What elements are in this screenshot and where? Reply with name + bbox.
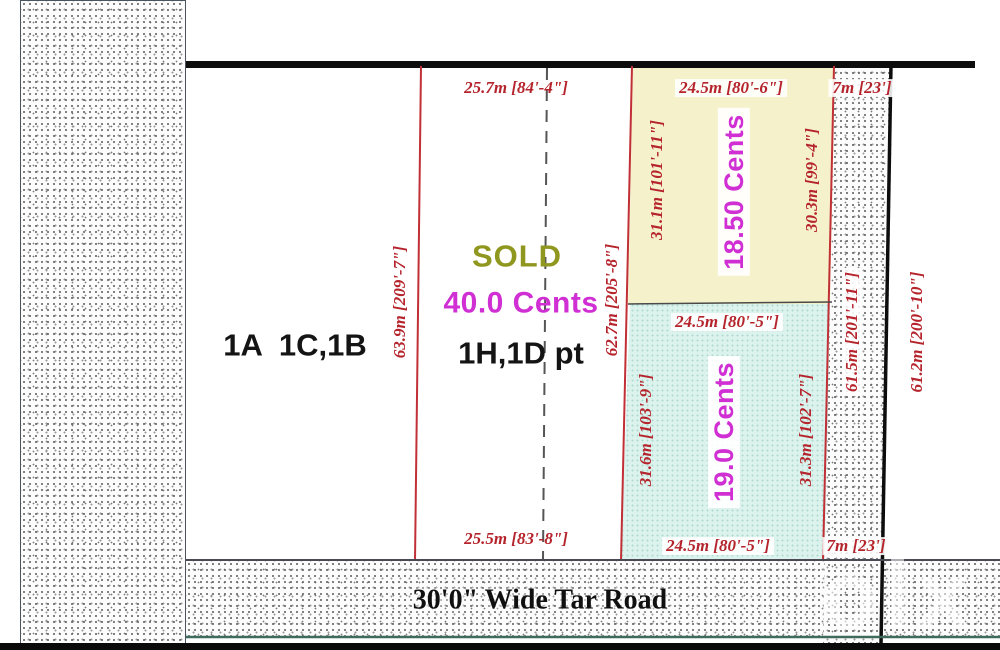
main-plot-id-label: 1H,1D pt <box>458 338 584 371</box>
plot-layout-diagram: EXISTIN 25.7m [84'-4"] 63.9m [209'-7"] 6… <box>0 0 1000 650</box>
tar-road-label: 30'0" Wide Tar Road <box>413 585 667 614</box>
strip-top-dim: 7m [23'] <box>828 79 895 97</box>
blue-plot-left-dim: 31.6m [103'-9"] <box>637 374 655 486</box>
main-plot-right-dim: 62.7m [205'-8"] <box>603 244 621 356</box>
olx-watermark: olx <box>820 546 975 646</box>
main-plot-top-dim: 25.7m [84'-4"] <box>464 79 568 97</box>
yellow-plot-right-dim: 30.3m [99'-4"] <box>803 128 821 232</box>
blue-plot-bottom-dim: 24.5m [80'-5"] <box>662 537 774 555</box>
strip-outer-dim: 61.2m [200'-10"] <box>908 272 926 393</box>
strip-inner-dim: 61.5m [201'-11"] <box>843 268 861 396</box>
blue-plot-area-label: 19.0 Cents <box>708 356 740 508</box>
main-plot-left-dim: 63.9m [209'-7"] <box>391 246 409 358</box>
main-plot-area-label: 40.0 Cents <box>443 287 598 319</box>
blue-plot-right-dim: 31.3m [102'-7"] <box>797 374 815 486</box>
main-plot-left-line <box>415 66 421 561</box>
yellow-plot-area-label: 18.50 Cents <box>718 108 750 276</box>
sold-status-label: SOLD <box>472 241 562 274</box>
yellow-plot-top-dim: 24.5m [80'-6"] <box>675 79 787 97</box>
yellow-plot-left-dim: 31.1m [101'-11"] <box>648 120 666 240</box>
main-plot-bottom-dim: 25.5m [83'-8"] <box>464 530 568 548</box>
existing-road-band <box>20 0 186 644</box>
neighbor-plot-id-label: 1A 1C,1B <box>223 330 367 363</box>
blue-plot-top-dim: 24.5m [80'-5"] <box>671 313 783 331</box>
